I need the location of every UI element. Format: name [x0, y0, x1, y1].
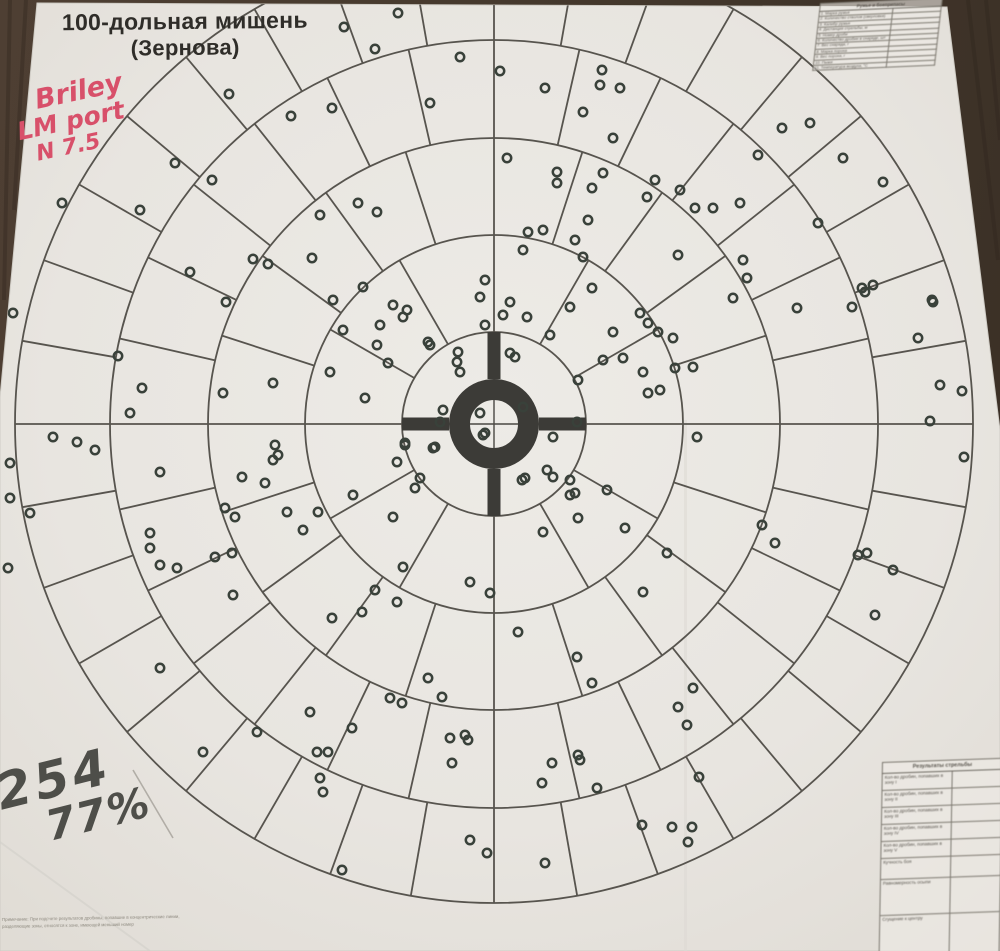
ammo-table-body: 1. Марка ружья2. Количество стволов (све…: [813, 6, 942, 71]
row-label: Сгущение к центру: [879, 913, 949, 951]
row-value-cell: [951, 787, 1000, 806]
row-label: Равномерность осыпи: [880, 877, 950, 915]
target-title: 100-дольная мишень (Зернова): [52, 7, 319, 62]
row-value-cell: [950, 855, 1000, 878]
photo-of-shooting-target: 100-дольная мишень (Зернова) Briley LM p…: [0, 0, 1000, 951]
table-row: Равномерность осыпи: [880, 876, 1000, 916]
target-title-line2: (Зернова): [52, 33, 318, 61]
shooting-results-table: Результаты стрельбы Кол-во дробин, попав…: [879, 758, 1000, 951]
row-value-cell: [952, 770, 1000, 789]
row-value-cell: [949, 912, 1000, 951]
row-value-cell: [951, 804, 1000, 823]
row-value-cell: [951, 821, 1000, 840]
row-value-cell: [949, 876, 1000, 914]
table-row: Сгущение к центру: [879, 912, 1000, 951]
row-value-cell: [950, 838, 1000, 857]
ammo-info-table: Ружье и боеприпасы 1. Марка ружья2. Коли…: [812, 0, 943, 71]
results-table-body: Кол-во дробин, попавших в зону IКол-во д…: [879, 770, 1000, 951]
row-label: Кучность боя: [880, 856, 950, 879]
target-title-line1: 100-дольная мишень: [52, 7, 318, 36]
